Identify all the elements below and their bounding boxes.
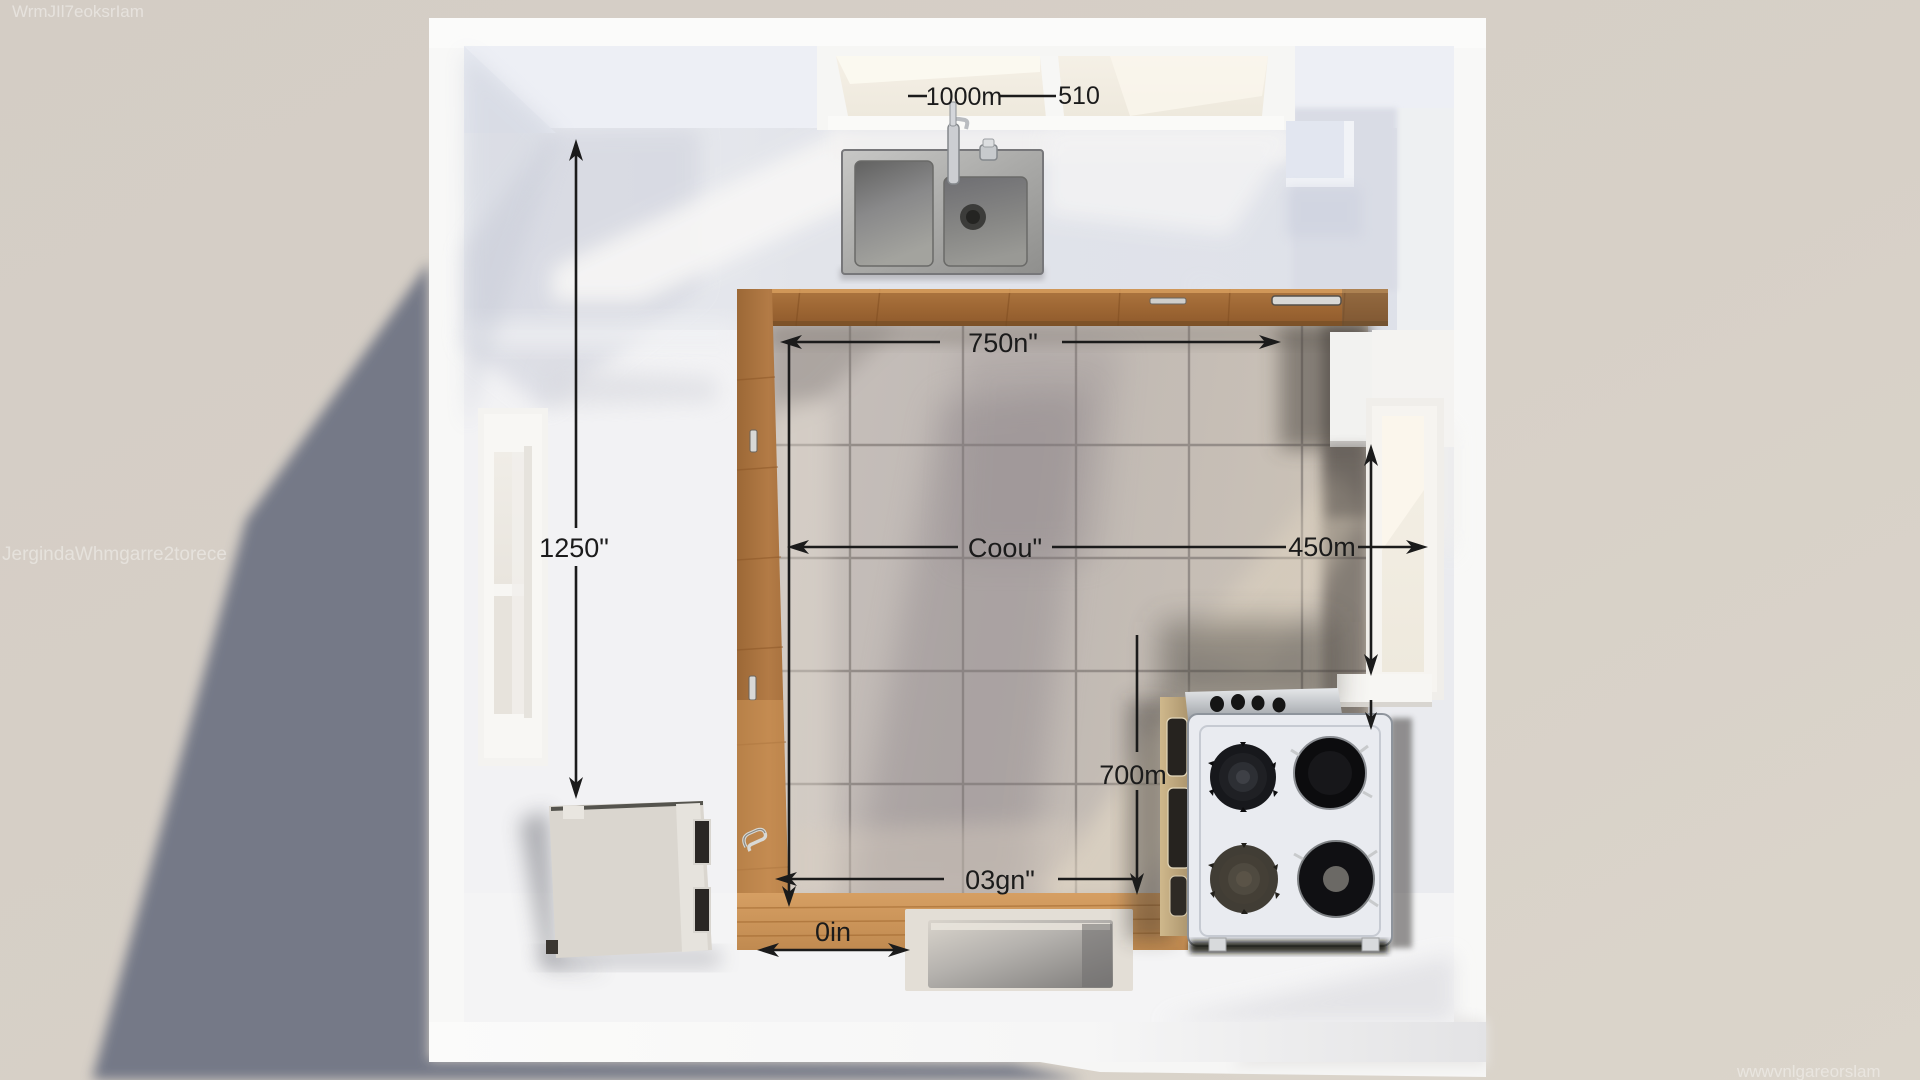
- svg-text:03gn": 03gn": [965, 865, 1035, 895]
- svg-text:1000m: 1000m: [926, 83, 1002, 111]
- svg-text:JergindaWhmgarre2torece: JergindaWhmgarre2torece: [2, 544, 227, 565]
- svg-text:Coou": Coou": [968, 533, 1042, 563]
- svg-text:750n": 750n": [968, 328, 1038, 358]
- svg-text:0in: 0in: [815, 917, 851, 947]
- svg-text:WrmJIl7eoksrIam: WrmJIl7eoksrIam: [12, 2, 144, 21]
- svg-text:wwwvnlgareorslam: wwwvnlgareorslam: [1736, 1062, 1881, 1080]
- svg-text:450m: 450m: [1288, 532, 1356, 562]
- svg-text:700m: 700m: [1099, 760, 1167, 790]
- svg-text:510: 510: [1058, 82, 1100, 110]
- svg-text:1250": 1250": [539, 533, 609, 563]
